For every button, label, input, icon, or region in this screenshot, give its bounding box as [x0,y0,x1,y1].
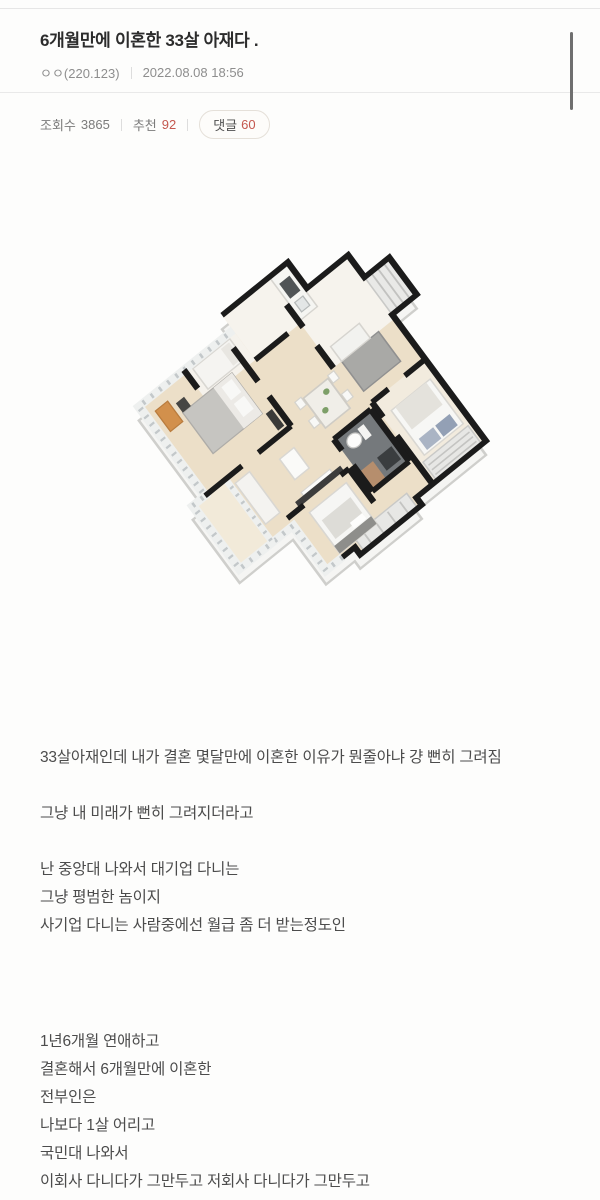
body-paragraph: 33살아재인데 내가 결혼 몇달만에 이혼한 이유가 뭔줄아냐 걍 뻔히 그려짐 [40,744,568,772]
post-title: 6개월만에 이혼한 33살 아재다 . [40,26,540,51]
author-name: ㅇㅇ(220.123) [40,63,120,82]
top-divider [0,8,600,9]
meta-divider [131,67,132,79]
post-stats: 조회수 3865 추천 92 댓글 60 [40,110,270,139]
views-label: 조회수 [40,115,76,134]
post-meta: ㅇㅇ(220.123) 2022.08.08 18:56 [40,63,244,82]
floorplan-image [128,245,500,597]
body-paragraph: 그냥 내 미래가 뻔히 그려지더라고 [40,800,568,828]
stats-divider [121,119,122,131]
comments-button[interactable]: 댓글 60 [199,110,269,139]
views-count: 3865 [81,117,110,132]
body-paragraph: 1년6개월 연애하고 결혼해서 6개월만에 이혼한 전부인은 나보다 1살 어리… [40,1028,568,1196]
upvote-label: 추천 [133,115,157,134]
post-timestamp: 2022.08.08 18:56 [143,65,244,80]
body-paragraph: 난 중앙대 나와서 대기업 다니는 그냥 평범한 놈이지 사기업 다니는 사람중… [40,856,568,940]
comment-count: 60 [241,117,255,132]
stats-divider [187,119,188,131]
upvote-count: 92 [162,117,176,132]
comment-label: 댓글 [213,115,237,134]
header-divider [0,92,600,93]
post-body: 33살아재인데 내가 결혼 몇달만에 이혼한 이유가 뭔줄아냐 걍 뻔히 그려짐… [40,744,568,1196]
forum-post-page: 6개월만에 이혼한 33살 아재다 . ㅇㅇ(220.123) 2022.08.… [0,0,600,1200]
scrollbar-thumb[interactable] [570,32,573,110]
